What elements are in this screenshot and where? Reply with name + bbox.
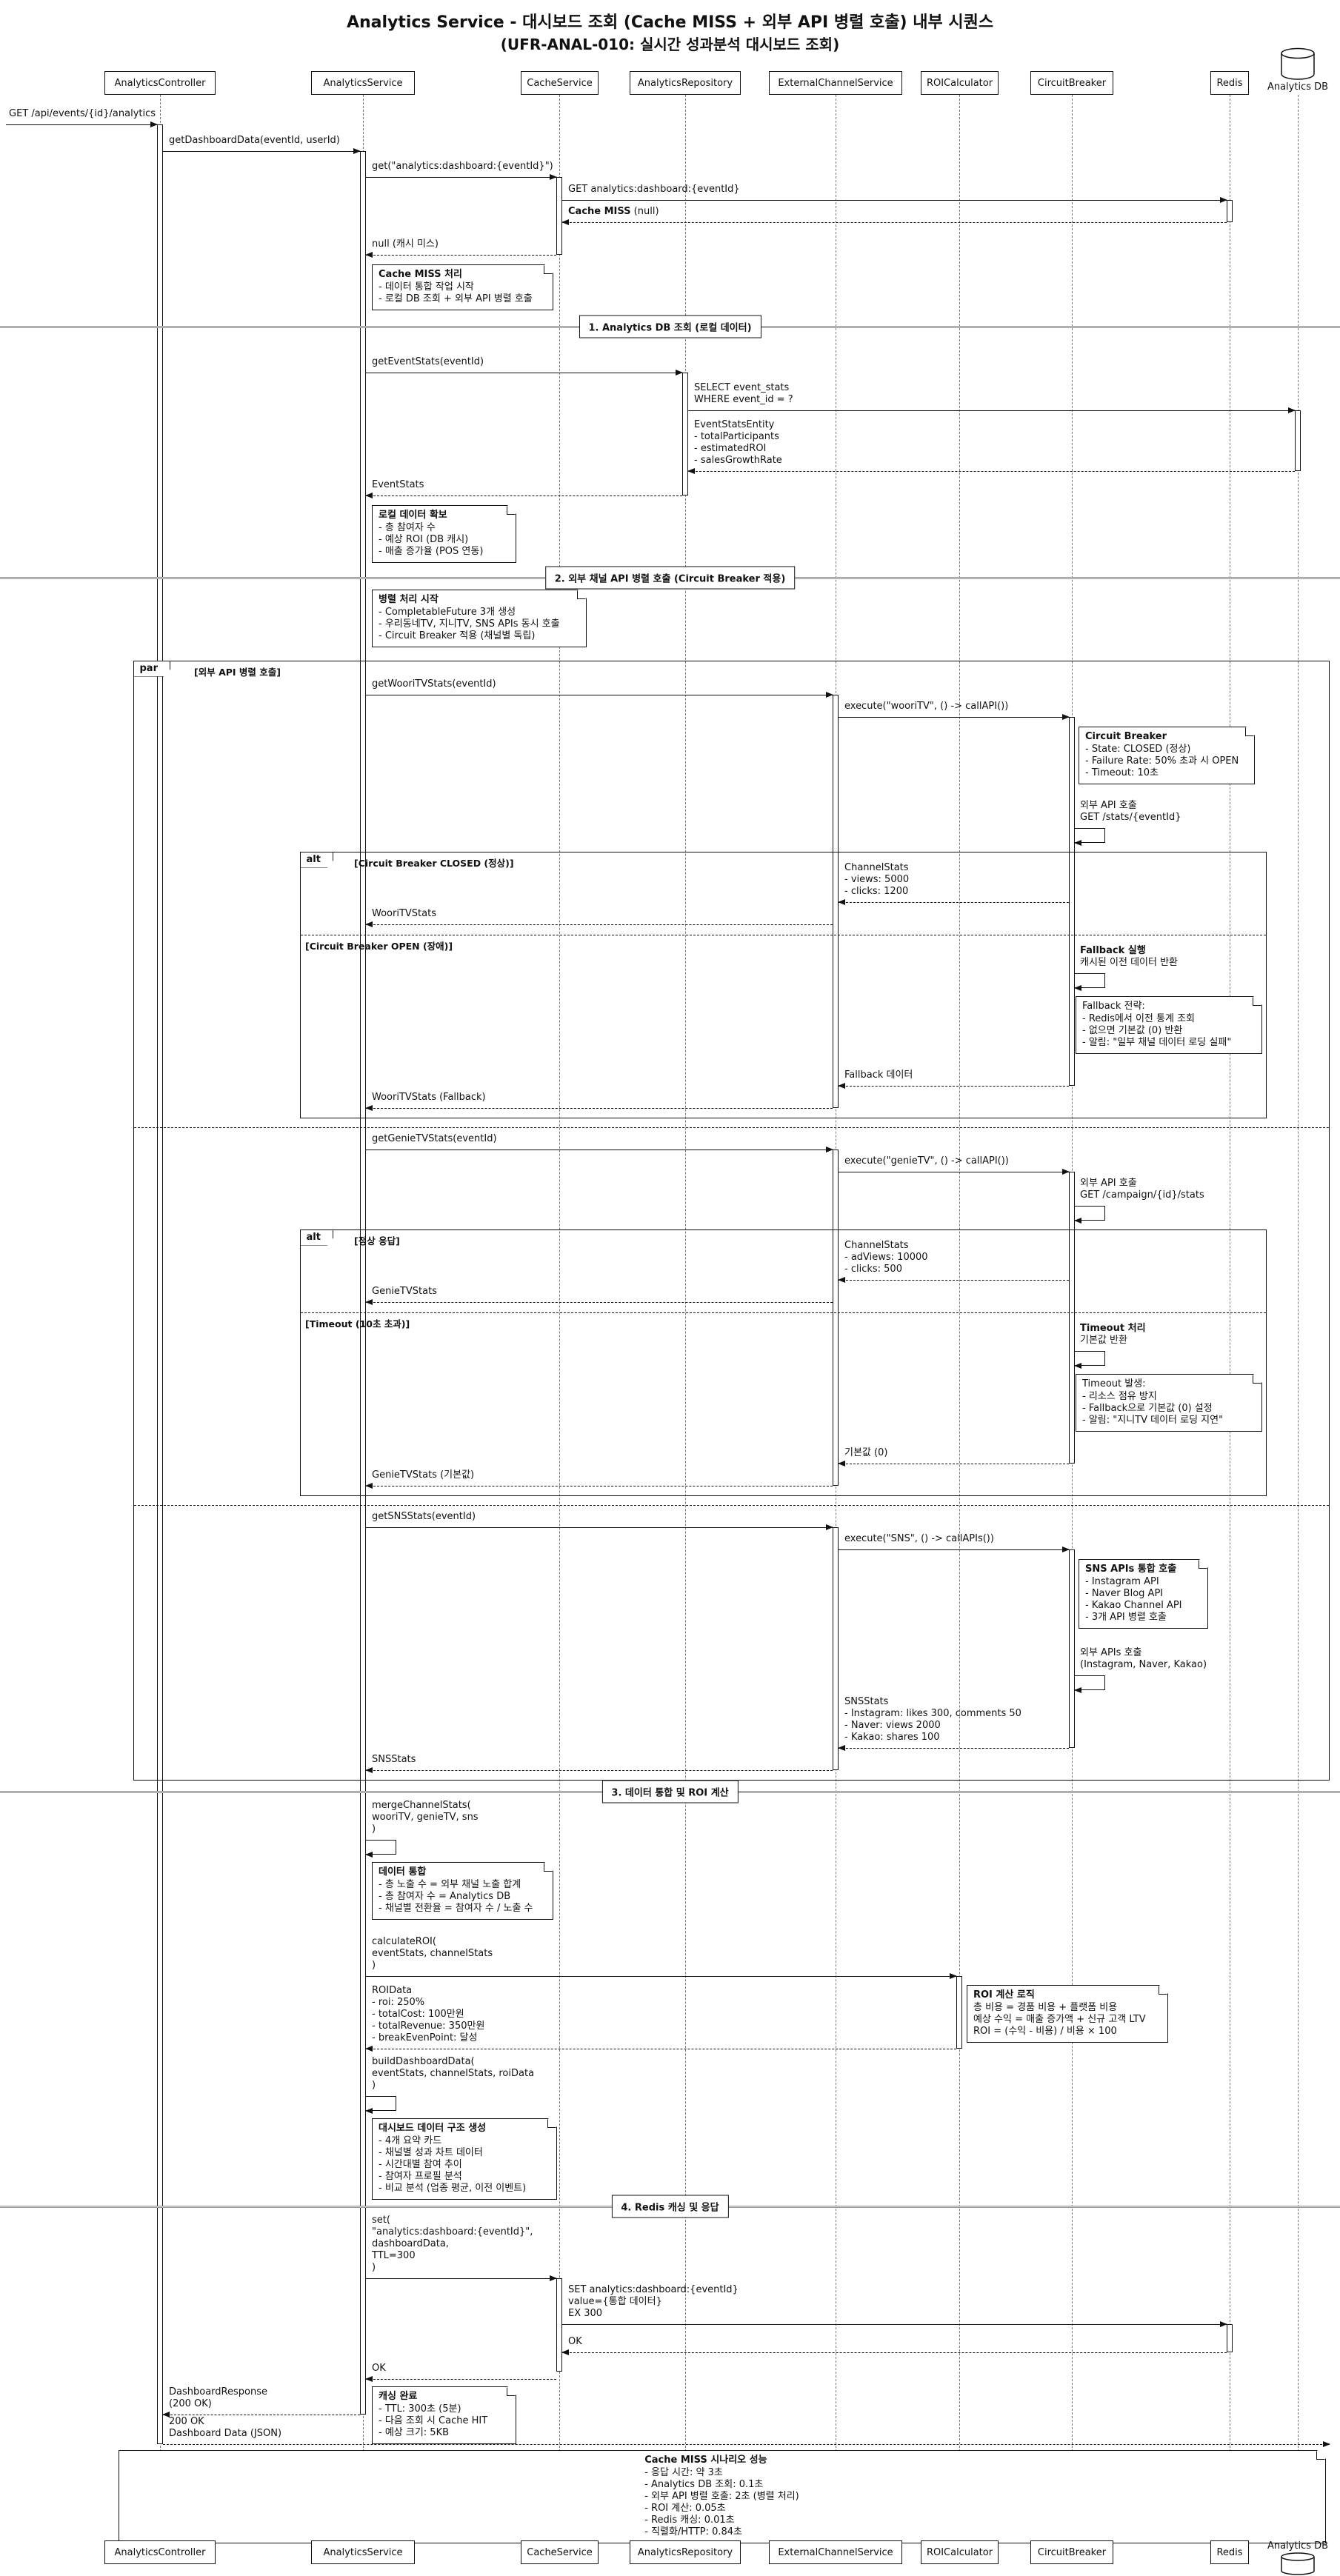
- note-line: - 총 참여자 수 = Analytics DB: [379, 1891, 546, 1903]
- alt1-fragment-frame: alt: [300, 852, 1267, 1118]
- participant-analytics-service-bottom: AnalyticsService: [311, 2540, 415, 2564]
- note-line: - Instagram API: [1085, 1576, 1201, 1588]
- note-line: - 시간대별 참여 추이: [379, 2159, 550, 2171]
- activation-cache-2: [556, 2278, 562, 2372]
- participant-analytics-db-bottom: Analytics DB: [1250, 2540, 1340, 2552]
- note-title: 대시보드 데이터 구조 생성: [379, 2123, 550, 2135]
- message-timeout-handling: Timeout 처리기본값 반환: [1080, 1323, 1146, 1347]
- note-line: - 참여자 프로필 분석: [379, 2171, 550, 2183]
- message-wooritv-stats-return: WooriTVStats: [372, 908, 436, 920]
- note-line: - 알림: "지니TV 데이터 로딩 지연": [1082, 1415, 1255, 1427]
- note-line: - Redis 캐싱: 0.01초: [644, 2515, 799, 2526]
- note-line: - Naver Blog API: [1085, 1588, 1201, 1600]
- arrow-dashboard-response: [163, 2415, 360, 2415]
- note-line: - 로컬 DB 조회 + 외부 API 병렬 호출: [379, 293, 546, 305]
- note-line: - 외부 API 병렬 호출: 2초 (병렬 처리): [644, 2491, 799, 2503]
- note-title: Circuit Breaker: [1085, 731, 1247, 743]
- message-snsstats-detail: SNSStats - Instagram: likes 300, comment…: [844, 1696, 1021, 1744]
- message-event-stats-return: EventStats: [372, 479, 424, 491]
- database-icon: [1280, 47, 1316, 80]
- message-cache-ok: OK: [372, 2363, 386, 2375]
- arrow-channelstats-wooritv: [839, 902, 1069, 903]
- note-line: - 매출 증가율 (POS 연동): [379, 546, 509, 558]
- message-execute-genietv: execute("genieTV", () -> callAPI()): [844, 1155, 1009, 1167]
- note-line: - Analytics DB 조회: 0.1초: [644, 2479, 799, 2491]
- note-line: - Circuit Breaker 적용 (채널별 독립): [379, 630, 579, 642]
- activation-cache-1: [556, 177, 562, 255]
- note-title: SNS APIs 통합 호출: [1085, 1564, 1201, 1575]
- participant-external-channel-service-bottom: ExternalChannelService: [769, 2540, 902, 2564]
- note-title: ROI 계산 로직: [973, 1989, 1161, 2001]
- activation-redis-2: [1227, 2324, 1233, 2352]
- note-line: - 없으면 기본값 (0) 반환: [1082, 1025, 1255, 1037]
- participant-external-channel-service-top: ExternalChannelService: [769, 71, 902, 95]
- message-external-apis-call-sns: 외부 APIs 호출 (Instagram, Naver, Kakao): [1080, 1647, 1207, 1671]
- alt2-condition: [정상 응답]: [354, 1233, 400, 1247]
- note-cache-miss-handling: Cache MISS 처리 - 데이터 통합 작업 시작 - 로컬 DB 조회 …: [372, 264, 553, 310]
- participant-cache-service-bottom: CacheService: [521, 2540, 599, 2564]
- activation-analytics-db: [1295, 410, 1301, 471]
- note-line: - 채널별 성과 차트 데이터: [379, 2147, 550, 2159]
- message-genietv-default-return: GenieTVStats (기본값): [372, 1469, 474, 1481]
- note-performance-summary: Cache MISS 시나리오 성능 - 응답 시간: 약 3초 - Analy…: [119, 2450, 1326, 2543]
- arrow-null-cache-miss: [366, 255, 556, 256]
- participant-analytics-db-top: Analytics DB: [1250, 81, 1340, 93]
- message-select-event-stats: SELECT event_stats WHERE event_id = ?: [694, 382, 793, 406]
- note-line: - TTL: 300초 (5분): [379, 2403, 509, 2415]
- participant-analytics-repository-top: AnalyticsRepository: [630, 71, 741, 95]
- note-line: - 총 노출 수 = 외부 채널 노출 합계: [379, 1879, 546, 1891]
- diagram-title-line2: (UFR-ANAL-010: 실시간 성과분석 대시보드 조회): [0, 33, 1340, 54]
- arrow-200-ok-json: [163, 2444, 1330, 2445]
- par-fragment-tag: par: [133, 661, 171, 677]
- note-parallel-start: 병렬 처리 시작 - CompletableFuture 3개 생성 - 우리동…: [372, 590, 587, 647]
- alt2-else-condition: [Timeout (10초 초과)]: [305, 1316, 410, 1330]
- note-line: - 예상 크기: 5KB: [379, 2427, 509, 2439]
- message-redis-set: SET analytics:dashboard:{eventId} value=…: [568, 2284, 739, 2320]
- note-circuit-breaker: Circuit Breaker - State: CLOSED (정상) - F…: [1079, 727, 1255, 784]
- selfcall-fallback: [1075, 973, 1105, 988]
- message-cache-miss-null: Cache MISS (null): [568, 206, 659, 218]
- arrow-execute-sns: [839, 1549, 1069, 1550]
- message-merge-channel-stats: mergeChannelStats( wooriTV, genieTV, sns…: [372, 1800, 479, 1835]
- message-cache-get: get("analytics:dashboard:{eventId}"): [372, 161, 553, 173]
- message-http-get-analytics: GET /api/events/{id}/analytics: [9, 108, 156, 120]
- participant-cache-service-top: CacheService: [521, 71, 599, 95]
- note-line: - 총 참여자 수: [379, 522, 509, 534]
- note-line: - Failure Rate: 50% 초과 시 OPEN: [1085, 755, 1247, 767]
- arrow-event-stats-return: [366, 495, 682, 496]
- note-title: Cache MISS 처리: [379, 269, 546, 281]
- par-fragment-condition: [외부 API 병렬 호출]: [194, 664, 281, 678]
- timeout-bold: Timeout 처리: [1080, 1323, 1146, 1335]
- message-get-event-stats: getEventStats(eventId): [372, 356, 484, 368]
- selfcall-sns-apis: [1075, 1675, 1105, 1690]
- arrow-wooritv-fallback-return: [366, 1108, 833, 1109]
- alt2-fragment-tag: alt: [300, 1229, 333, 1246]
- note-title: 병렬 처리 시작: [379, 594, 579, 606]
- divider-3-label: 3. 데이터 통합 및 ROI 계산: [601, 1781, 738, 1803]
- arrow-snsstats-detail: [839, 1748, 1069, 1749]
- message-genietv-stats-return: GenieTVStats: [372, 1286, 437, 1298]
- arrow-wooritv-stats-return: [366, 924, 833, 925]
- arrow-cache-ok: [366, 2379, 556, 2380]
- message-dashboard-response: DashboardResponse (200 OK): [169, 2386, 267, 2410]
- participant-redis-bottom: Redis: [1210, 2540, 1249, 2564]
- message-channelstats-genietv: ChannelStats - adViews: 10000 - clicks: …: [844, 1240, 928, 1275]
- note-line: - Kakao Channel API: [1085, 1600, 1201, 1612]
- arrow-roidata-return: [366, 2049, 956, 2049]
- arrow-redis-ok: [562, 2352, 1227, 2353]
- note-line: - 채널별 전환율 = 참여자 수 / 노출 수: [379, 1903, 546, 1915]
- note-data-merge: 데이터 통합 - 총 노출 수 = 외부 채널 노출 합계 - 총 참여자 수 …: [372, 1862, 553, 1920]
- arrow-event-stats-entity: [688, 471, 1295, 472]
- note-line: - 리소스 점유 방지: [1082, 1391, 1255, 1403]
- note-title: 로컬 데이터 확보: [379, 510, 509, 521]
- arrow-execute-genietv: [839, 1172, 1069, 1172]
- message-get-sns-stats: getSNSStats(eventId): [372, 1511, 476, 1523]
- arrow-channelstats-genietv: [839, 1280, 1069, 1281]
- message-external-api-call-wooritv: 외부 API 호출 GET /stats/{eventId}: [1080, 800, 1181, 824]
- activation-roi: [956, 1976, 962, 2049]
- alt1-condition: [Circuit Breaker CLOSED (정상)]: [354, 855, 514, 870]
- arrow-execute-wooritv: [839, 717, 1069, 718]
- selfcall-genietv-api: [1075, 1206, 1105, 1221]
- note-line: - ROI 계산: 0.05초: [644, 2503, 799, 2515]
- note-title: Fallback 전략:: [1082, 1001, 1255, 1012]
- participant-analytics-controller-top: AnalyticsController: [104, 71, 216, 95]
- activation-repository: [682, 373, 688, 495]
- note-line: - 알림: "일부 채널 데이터 로딩 실패": [1082, 1037, 1255, 1049]
- alt2-else-separator: [301, 1312, 1266, 1313]
- diagram-title-line1: Analytics Service - 대시보드 조회 (Cache MISS …: [0, 9, 1340, 33]
- message-build-dashboard-data: buildDashboardData( eventStats, channelS…: [372, 2056, 534, 2092]
- participant-circuit-breaker-top: CircuitBreaker: [1030, 71, 1113, 95]
- divider-2-label: 2. 외부 채널 API 병렬 호출 (Circuit Breaker 적용): [545, 567, 796, 590]
- database-icon: [1280, 2552, 1316, 2576]
- note-sns-apis: SNS APIs 통합 호출 - Instagram API - Naver B…: [1079, 1559, 1208, 1629]
- message-fallback-exec: Fallback 실행캐시된 이전 데이터 반환: [1080, 945, 1178, 969]
- sequence-diagram: Analytics Service - 대시보드 조회 (Cache MISS …: [0, 0, 1340, 2576]
- arrow-get-sns-stats: [366, 1527, 833, 1528]
- message-channelstats-wooritv: ChannelStats - views: 5000 - clicks: 120…: [844, 862, 909, 898]
- message-event-stats-entity: EventStatsEntity - totalParticipants - e…: [694, 419, 782, 467]
- note-line: - Fallback으로 기본값 (0) 설정: [1082, 1403, 1255, 1415]
- note-line: - State: CLOSED (정상): [1085, 744, 1247, 755]
- note-dashboard-structure: 대시보드 데이터 구조 생성 - 4개 요약 카드 - 채널별 성과 차트 데이…: [372, 2118, 557, 2200]
- divider-4-label: 4. Redis 캐싱 및 응답: [611, 2195, 728, 2218]
- participant-analytics-controller-bottom: AnalyticsController: [104, 2540, 216, 2564]
- activation-redis-1: [1227, 200, 1233, 222]
- par-separator-1: [134, 1127, 1329, 1128]
- note-line: - 우리동네TV, 지니TV, SNS APIs 동시 호출: [379, 618, 579, 630]
- note-line: - 3개 API 병렬 호출: [1085, 1612, 1201, 1624]
- divider-1-label: 1. Analytics DB 조회 (로컬 데이터): [579, 316, 761, 338]
- note-fallback-strategy: Fallback 전략: - Redis에서 이전 통계 조회 - 없으면 기본…: [1076, 996, 1262, 1054]
- arrow-genietv-default-return: [366, 1486, 833, 1486]
- message-get-genietv-stats: getGenieTVStats(eventId): [372, 1133, 497, 1145]
- message-execute-wooritv: execute("wooriTV", () -> callAPI()): [844, 701, 1008, 713]
- note-title: Timeout 발생:: [1082, 1378, 1255, 1390]
- message-wooritv-fallback-return: WooriTVStats (Fallback): [372, 1092, 486, 1104]
- note-title: 캐싱 완료: [379, 2391, 509, 2403]
- note-line: - 예상 ROI (DB 캐시): [379, 534, 509, 546]
- arrow-get-event-stats: [366, 373, 682, 373]
- note-line: - 4개 요약 카드: [379, 2135, 550, 2147]
- message-redis-get: GET analytics:dashboard:{eventId}: [568, 184, 740, 196]
- arrow-get-genietv-stats: [366, 1149, 833, 1150]
- participant-circuit-breaker-bottom: CircuitBreaker: [1030, 2540, 1113, 2564]
- arrow-http-get-analytics: [6, 124, 157, 125]
- arrow-default-value: [839, 1464, 1069, 1464]
- note-title: 데이터 통합: [379, 1866, 546, 1878]
- message-roidata-return: ROIData - roi: 250% - totalCost: 100만원 -…: [372, 1985, 484, 2044]
- arrow-calculate-roi: [366, 1976, 956, 1977]
- participant-roi-calculator-top: ROICalculator: [921, 71, 999, 95]
- message-snsstats-return: SNSStats: [372, 1754, 416, 1766]
- message-calculate-roi: calculateROI( eventStats, channelStats ): [372, 1936, 493, 1972]
- selfcall-timeout: [1075, 1351, 1105, 1366]
- message-external-api-call-genietv: 외부 API 호출 GET /campaign/{id}/stats: [1080, 1178, 1204, 1201]
- note-line: - 비교 분석 (업종 평균, 이전 이벤트): [379, 2183, 550, 2195]
- message-execute-sns: execute("SNS", () -> callAPIs()): [844, 1533, 994, 1545]
- arrow-redis-set: [562, 2324, 1227, 2325]
- note-title: Cache MISS 시나리오 성능: [644, 2455, 799, 2466]
- participant-roi-calculator-bottom: ROICalculator: [921, 2540, 999, 2564]
- message-null-cache-miss: null (캐시 미스): [372, 238, 439, 250]
- message-redis-ok: OK: [568, 2336, 582, 2348]
- arrow-get-dashboard-data: [163, 151, 360, 152]
- message-fallback-data: Fallback 데이터: [844, 1070, 913, 1081]
- note-line: - 직렬화/HTTP: 0.84초: [644, 2526, 799, 2538]
- arrow-cache-miss-null: [562, 222, 1227, 223]
- message-get-wooritv-stats: getWooriTVStats(eventId): [372, 678, 496, 690]
- timeout-rest: 기본값 반환: [1080, 1335, 1127, 1346]
- arrow-get-wooritv-stats: [366, 695, 833, 695]
- cache-miss-bold: Cache MISS: [568, 206, 631, 217]
- alt1-else-condition: [Circuit Breaker OPEN (장애)]: [305, 938, 453, 952]
- note-line: - 데이터 통합 작업 시작: [379, 281, 546, 293]
- arrow-cache-set: [366, 2278, 556, 2279]
- participant-analytics-repository-bottom: AnalyticsRepository: [630, 2540, 741, 2564]
- message-default-value: 기본값 (0): [844, 1447, 887, 1459]
- arrow-cache-get: [366, 177, 556, 178]
- arrow-fallback-data: [839, 1086, 1069, 1087]
- note-local-data: 로컬 데이터 확보 - 총 참여자 수 - 예상 ROI (DB 캐시) - 매…: [372, 505, 516, 563]
- cache-miss-rest: (null): [631, 206, 659, 217]
- alt1-else-separator: [301, 935, 1266, 935]
- arrow-genietv-stats-return: [366, 1302, 833, 1303]
- participant-redis-top: Redis: [1210, 71, 1249, 95]
- note-timeout: Timeout 발생: - 리소스 점유 방지 - Fallback으로 기본값…: [1076, 1374, 1262, 1432]
- message-cache-set: set( "analytics:dashboard:{eventId}", da…: [372, 2215, 533, 2274]
- note-line: - CompletableFuture 3개 생성: [379, 607, 579, 618]
- note-line: ROI = (수익 - 비용) / 비용 × 100: [973, 2026, 1161, 2038]
- note-line: - 다음 조회 시 Cache HIT: [379, 2415, 509, 2427]
- note-line: - 응답 시간: 약 3초: [644, 2467, 799, 2479]
- arrow-redis-get: [562, 200, 1227, 201]
- note-line: - Redis에서 이전 통계 조회: [1082, 1013, 1255, 1025]
- selfcall-merge-channel-stats: [366, 1840, 396, 1855]
- note-line: 총 비용 = 경품 비용 + 플랫폼 비용: [973, 2002, 1161, 2014]
- arrow-snsstats-return: [366, 1770, 833, 1771]
- fallback-exec-rest: 캐시된 이전 데이터 반환: [1080, 957, 1178, 968]
- note-line: - Timeout: 10초: [1085, 767, 1247, 779]
- selfcall-build-dashboard-data: [366, 2096, 396, 2111]
- alt2-fragment-frame: alt: [300, 1229, 1267, 1496]
- note-line: 예상 수익 = 매출 증가액 + 신규 고객 LTV: [973, 2014, 1161, 2026]
- arrow-select-event-stats: [688, 410, 1295, 411]
- message-200-ok-json: 200 OK Dashboard Data (JSON): [169, 2416, 281, 2440]
- message-get-dashboard-data: getDashboardData(eventId, userId): [169, 135, 340, 147]
- participant-analytics-service-top: AnalyticsService: [311, 71, 415, 95]
- alt1-fragment-tag: alt: [300, 852, 333, 868]
- par-separator-2: [134, 1505, 1329, 1506]
- note-roi-logic: ROI 계산 로직 총 비용 = 경품 비용 + 플랫폼 비용 예상 수익 = …: [967, 1985, 1168, 2043]
- selfcall-wooritv-api: [1075, 828, 1105, 843]
- note-caching-done: 캐싱 완료 - TTL: 300초 (5분) - 다음 조회 시 Cache H…: [372, 2386, 516, 2444]
- fallback-exec-bold: Fallback 실행: [1080, 945, 1178, 957]
